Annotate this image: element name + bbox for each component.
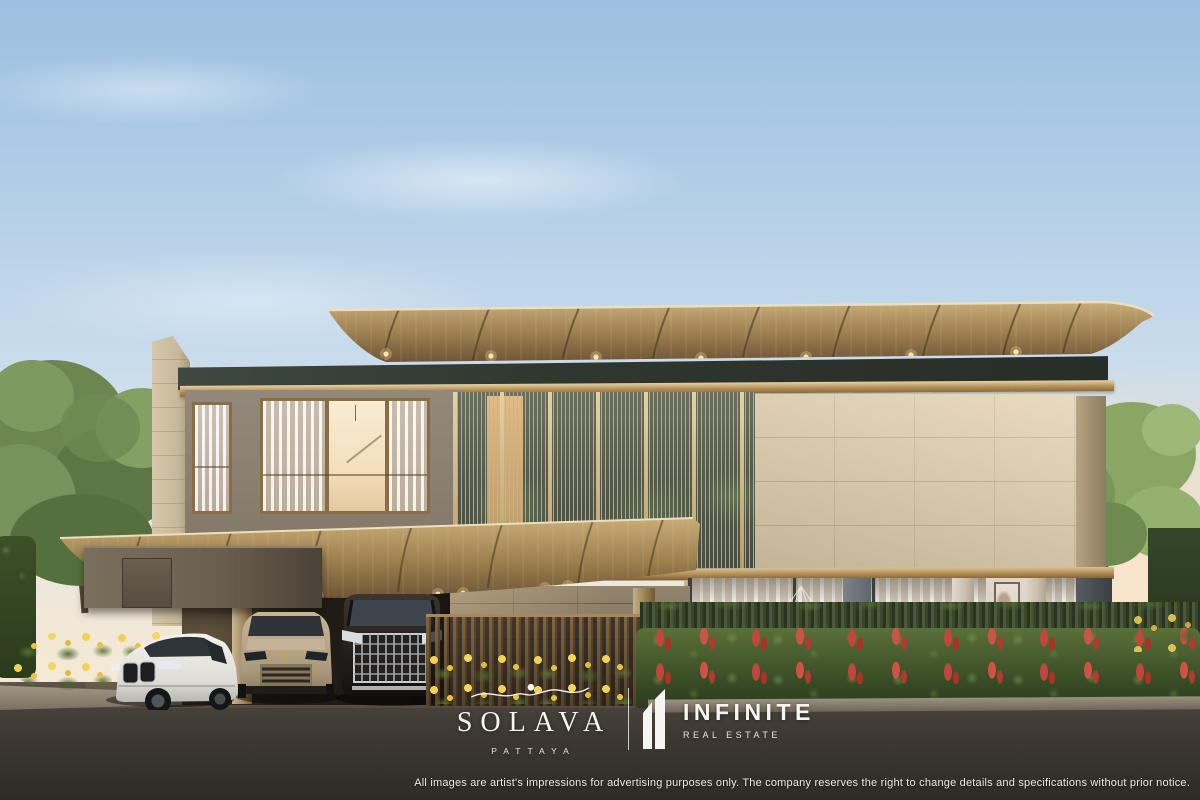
solava-location: PATTAYA (447, 746, 620, 756)
solava-name: SOLAVA (448, 707, 620, 739)
stair-rail (346, 435, 382, 464)
upper-window-main (260, 398, 430, 514)
red-flower-spikes (646, 628, 1200, 684)
infinite-subtitle: REAL ESTATE (683, 730, 815, 740)
villa-render-scene: SOLAVA PATTAYA INFINITE REAL ESTATE All … (0, 0, 1200, 800)
infinite-name: INFINITE (683, 699, 815, 726)
yellow-flower-bed-right (1128, 612, 1200, 652)
infinite-logo: INFINITE REAL ESTATE (643, 689, 815, 749)
stone-wall-corner (1076, 396, 1106, 578)
solava-logo: SOLAVA PATTAYA (440, 682, 620, 756)
white-sedan (111, 634, 238, 711)
curtain-pane (389, 401, 427, 511)
brand-divider (628, 688, 629, 750)
sun-wave-emblem-icon (468, 682, 592, 702)
upper-window-left (192, 402, 232, 514)
disclaimer-text: All images are artist's impressions for … (414, 777, 1190, 789)
lit-interior-pane (329, 401, 385, 511)
one-building-emblem-icon (643, 689, 673, 749)
parked-cars (98, 584, 450, 710)
curved-timber-roof (316, 296, 1166, 398)
brand-lockup: SOLAVA PATTAYA INFINITE REAL ESTATE (440, 682, 815, 756)
pendant-light (355, 405, 356, 421)
curtain-pane (263, 401, 325, 511)
champagne-suv (238, 612, 334, 698)
upper-stone-wall (755, 394, 1077, 578)
